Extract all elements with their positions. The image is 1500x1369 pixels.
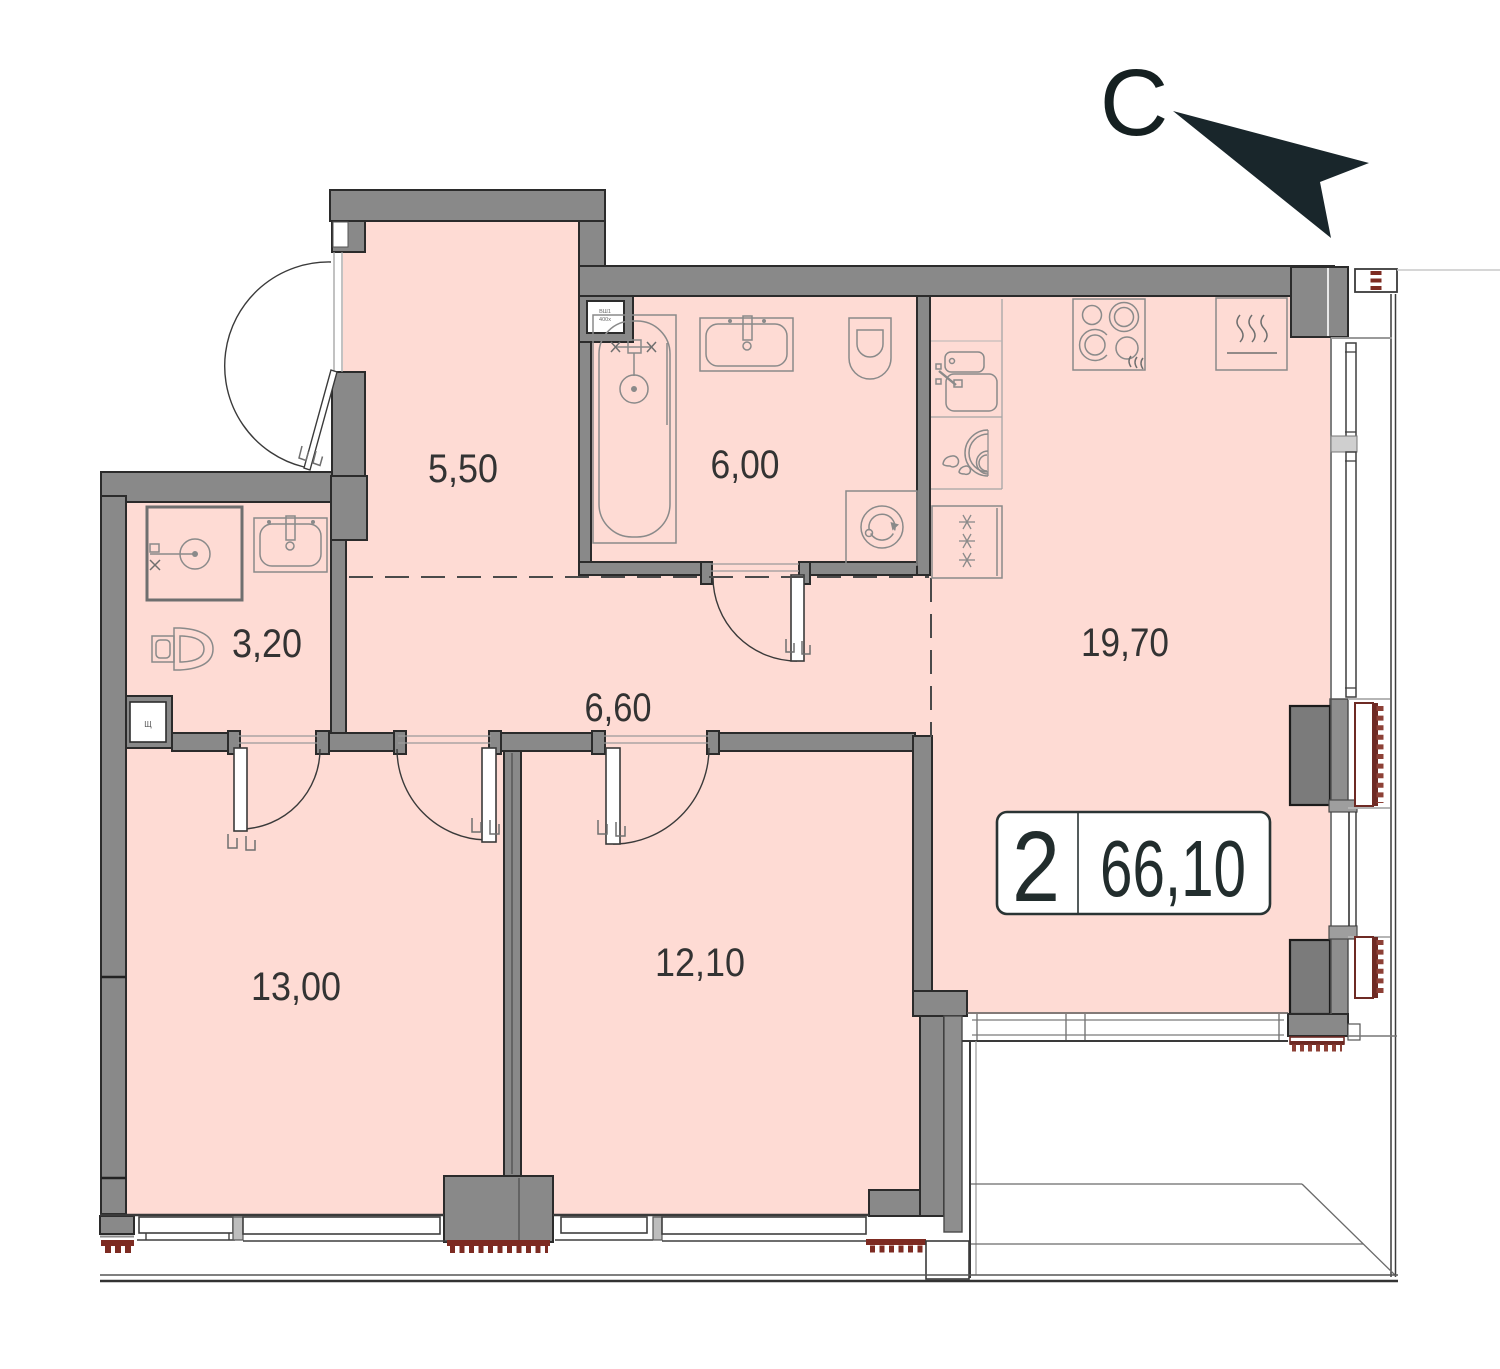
svg-text:19,70: 19,70 xyxy=(1081,621,1169,665)
svg-text:ВШ1: ВШ1 xyxy=(599,309,611,315)
svg-text:6,00: 6,00 xyxy=(711,443,780,487)
svg-text:С: С xyxy=(1100,50,1169,156)
svg-text:66,10: 66,10 xyxy=(1100,824,1246,913)
svg-text:6,60: 6,60 xyxy=(585,686,652,730)
svg-text:3,20: 3,20 xyxy=(232,622,302,666)
svg-text:5,50: 5,50 xyxy=(428,447,498,491)
svg-text:Щ: Щ xyxy=(144,720,152,729)
svg-text:12,10: 12,10 xyxy=(655,941,745,985)
svg-text:13,00: 13,00 xyxy=(251,965,341,1009)
svg-text:2: 2 xyxy=(1012,811,1060,923)
svg-text:400х: 400х xyxy=(599,317,611,323)
